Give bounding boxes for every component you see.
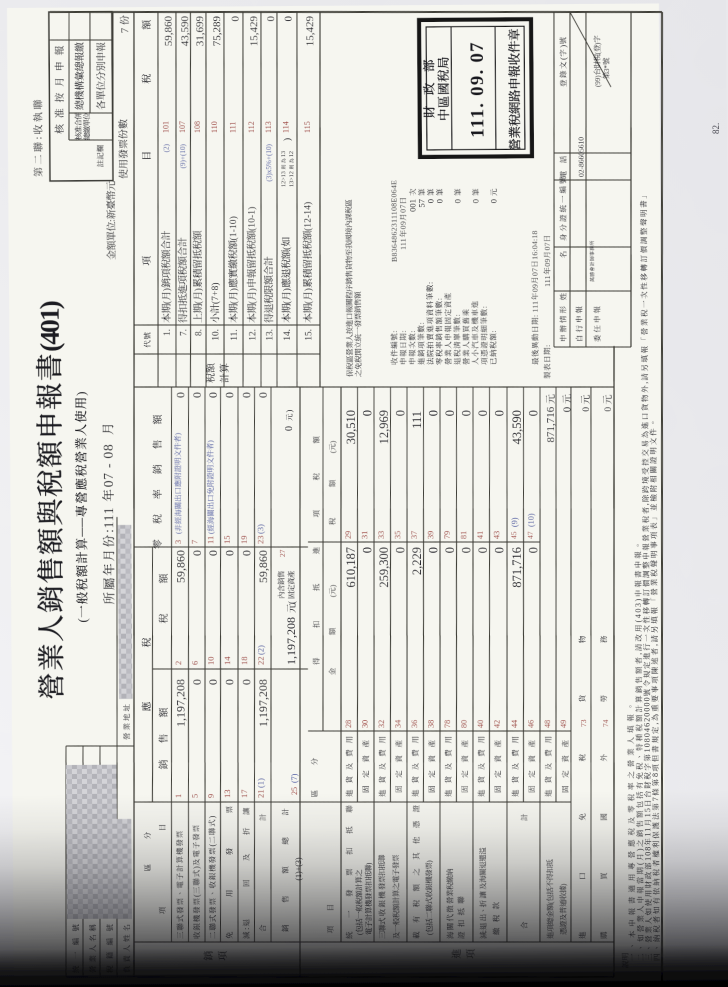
svg-text:46: 46 [526, 720, 535, 728]
svg-text:47: 47 [526, 531, 535, 539]
svg-text:(401): (401) [35, 299, 66, 352]
svg-text:113: 113 [264, 121, 273, 133]
svg-text:0: 0 [471, 199, 481, 203]
svg-text:13.: 13. [266, 329, 276, 341]
svg-text:0: 0 [604, 407, 614, 412]
svg-text:37: 37 [410, 531, 419, 539]
svg-text:(: ( [303, 301, 314, 304]
svg-text:(: ( [287, 601, 297, 604]
svg-text:0: 0 [582, 407, 592, 412]
svg-text:32: 32 [377, 720, 386, 728]
svg-text:31,699: 31,699 [194, 15, 206, 46]
svg-text:09: 09 [399, 221, 408, 229]
svg-text:0: 0 [206, 392, 220, 398]
svg-text:): ) [282, 138, 293, 141]
svg-text:15: 15 [222, 535, 232, 544]
svg-text:7.: 7. [180, 329, 190, 336]
svg-text:871,716: 871,716 [510, 547, 524, 588]
svg-text:13: 13 [280, 151, 287, 157]
svg-text:0: 0 [562, 406, 574, 412]
svg-text:111: 111 [410, 411, 424, 429]
svg-text::: : [480, 306, 489, 309]
svg-text::: : [543, 345, 552, 347]
svg-text:): ) [229, 288, 240, 291]
svg-text:,: , [651, 721, 660, 724]
svg-text:12>13: 12>13 [280, 171, 287, 187]
svg-text:(1-10): (1-10) [228, 216, 239, 241]
svg-text:09: 09 [530, 284, 539, 292]
svg-text:44: 44 [510, 720, 519, 728]
svg-text:0: 0 [493, 547, 507, 553]
svg-text:0: 0 [459, 547, 473, 553]
svg-text:59,860: 59,860 [174, 550, 188, 583]
svg-text:(2): (2) [255, 645, 265, 655]
svg-text:09: 09 [543, 258, 552, 266]
svg-text:8: 8 [651, 772, 660, 777]
svg-text:(: ( [193, 301, 204, 304]
svg-text:48: 48 [543, 720, 552, 728]
svg-text:0: 0 [206, 679, 220, 685]
svg-text:0: 0 [393, 547, 407, 553]
svg-text:): ) [282, 288, 293, 291]
svg-text:0: 0 [493, 410, 507, 416]
svg-text:(403): (403) [634, 597, 643, 622]
svg-text:112: 112 [247, 121, 256, 133]
svg-text:33: 33 [377, 531, 386, 539]
svg-text:0: 0 [394, 410, 408, 416]
svg-text:35: 35 [393, 531, 402, 539]
svg-text:0: 0 [223, 550, 237, 556]
svg-text:: 111: : 111 [531, 301, 540, 317]
svg-text:07: 07 [543, 242, 552, 250]
svg-text:12.: 12. [249, 329, 259, 341]
svg-text:0: 0 [206, 550, 220, 556]
svg-text:0: 0 [256, 392, 270, 398]
svg-text:(: ( [229, 301, 240, 304]
svg-text:0: 0 [476, 547, 490, 553]
svg-text:16:04:18: 16:04:18 [530, 230, 539, 259]
svg-text:): ) [247, 288, 258, 291]
svg-text:111: 111 [543, 275, 552, 287]
svg-text:0: 0 [527, 410, 541, 416]
svg-text:0: 0 [222, 679, 236, 685]
svg-text:101: 101 [161, 121, 170, 133]
svg-text:,: , [641, 502, 650, 505]
svg-text:(2): (2) [162, 143, 170, 152]
svg-text::: : [453, 314, 462, 317]
svg-text:15.: 15. [305, 329, 315, 341]
svg-text:1.: 1. [163, 329, 173, 336]
svg-text::: : [489, 330, 498, 333]
svg-text:3*: 3* [603, 64, 611, 72]
svg-text:07: 07 [399, 204, 408, 212]
svg-text:10: 10 [205, 656, 215, 665]
svg-text:31: 31 [360, 531, 369, 539]
svg-text:): ) [73, 391, 88, 396]
svg-text:0: 0 [427, 410, 441, 416]
svg-text:1,197,208: 1,197,208 [284, 617, 298, 665]
svg-text:81: 81 [459, 531, 468, 539]
svg-text:39: 39 [426, 531, 435, 539]
svg-text:111: 111 [229, 122, 238, 133]
svg-text:43,590: 43,590 [510, 410, 524, 444]
svg-text:11: 11 [205, 536, 215, 544]
svg-text:1,197,208: 1,197,208 [256, 679, 270, 727]
svg-text:27: 27 [278, 549, 287, 557]
svg-text:82.: 82. [711, 123, 721, 134]
svg-text:111. 09. 07: 111. 09. 07 [467, 41, 489, 138]
svg-text:74: 74 [601, 719, 610, 727]
svg-text:): ) [303, 288, 314, 291]
svg-text:30,510: 30,510 [344, 410, 358, 444]
svg-text:): ) [193, 288, 204, 291]
svg-text:(9): (9) [510, 517, 519, 527]
svg-text:73: 73 [579, 719, 588, 727]
svg-text:75,289: 75,289 [211, 15, 223, 46]
svg-text:15,429: 15,429 [248, 15, 260, 46]
svg-text:28: 28 [344, 720, 353, 728]
svg-text:0: 0 [460, 410, 474, 416]
svg-text:78: 78 [443, 720, 452, 728]
svg-text:0: 0 [426, 547, 440, 553]
svg-text:0: 0 [229, 15, 241, 21]
svg-text:(10): (10) [526, 513, 535, 527]
svg-text:259,300: 259,300 [377, 547, 391, 588]
svg-text:7: 7 [119, 27, 131, 33]
svg-text:43: 43 [492, 531, 501, 539]
svg-text:29: 29 [344, 531, 353, 539]
svg-text:18: 18 [239, 656, 249, 665]
svg-text:871,716: 871,716 [545, 406, 557, 442]
svg-text:(7): (7) [290, 773, 299, 783]
svg-text:7: 7 [189, 540, 199, 544]
svg-text:(12-14): (12-14) [303, 202, 314, 231]
svg-text:0: 0 [361, 410, 375, 416]
svg-text:14: 14 [222, 656, 232, 665]
svg-text:0: 0 [265, 15, 277, 21]
svg-text:0: 0 [527, 547, 541, 553]
svg-text:36: 36 [410, 720, 419, 728]
svg-text:(3)x5%+(10): (3)x5%+(10) [265, 143, 273, 181]
svg-text:(1): (1) [255, 778, 265, 788]
svg-text:40: 40 [476, 720, 485, 728]
svg-text:0: 0 [223, 392, 237, 398]
svg-text:(: ( [281, 247, 292, 250]
svg-text:8.: 8. [195, 329, 205, 336]
svg-text:07: 07 [530, 268, 539, 276]
svg-text:0: 0 [434, 199, 444, 203]
svg-text:0: 0 [443, 410, 457, 416]
svg-text:): ) [162, 288, 173, 291]
svg-text:(9)+(10): (9)+(10) [179, 143, 187, 168]
svg-text:2: 2 [173, 661, 183, 665]
svg-text:107: 107 [178, 121, 187, 133]
svg-text:1,197,208: 1,197,208 [174, 679, 188, 727]
svg-text:──: ── [74, 517, 89, 538]
svg-text:0: 0 [453, 199, 463, 203]
svg-text:11.: 11. [230, 329, 240, 340]
svg-text:0: 0 [476, 410, 490, 416]
svg-text:115: 115 [303, 121, 312, 133]
svg-text:02-86605610: 02-86605610 [577, 137, 586, 177]
svg-text::: : [108, 219, 118, 222]
svg-text:0: 0 [239, 550, 253, 556]
svg-text:,: , [634, 651, 643, 655]
svg-text:(: ( [282, 301, 293, 304]
svg-text:110: 110 [210, 121, 219, 133]
svg-text:(7+8): (7+8) [210, 282, 221, 304]
svg-text:,: , [650, 643, 659, 646]
svg-text:45: 45 [509, 531, 518, 539]
svg-text:0: 0 [239, 679, 253, 685]
svg-text:B8364862311108E064E: B8364862311108E064E [389, 180, 399, 262]
svg-text:0: 0 [240, 392, 254, 398]
svg-text:(: ( [75, 618, 90, 623]
svg-text:12: 12 [288, 151, 295, 157]
svg-text:22: 22 [255, 656, 265, 665]
svg-text::: : [435, 298, 444, 301]
svg-text:0: 0 [174, 392, 188, 398]
svg-text:14.: 14. [283, 329, 293, 341]
svg-text:114: 114 [282, 121, 291, 133]
svg-text:15,429: 15,429 [304, 15, 316, 46]
svg-text:19: 19 [239, 535, 249, 544]
svg-text:(: ( [162, 301, 173, 304]
svg-text:108: 108 [193, 121, 202, 133]
svg-text:0: 0 [360, 547, 374, 553]
svg-text:0: 0 [190, 679, 204, 685]
svg-text:3: 3 [173, 540, 183, 544]
svg-text:(10-1): (10-1) [247, 206, 258, 231]
svg-text::: : [408, 330, 417, 333]
svg-text:): ) [558, 44, 568, 47]
svg-text:610,187: 610,187 [344, 547, 358, 588]
svg-text::: : [390, 330, 399, 333]
svg-text:42: 42 [492, 720, 501, 728]
svg-text:38: 38 [426, 720, 435, 728]
svg-text:0: 0 [284, 426, 295, 431]
svg-text::: : [417, 322, 426, 325]
svg-text:30: 30 [360, 720, 369, 728]
svg-text:(3): (3) [255, 524, 265, 534]
svg-text:59,860: 59,860 [162, 15, 174, 46]
svg-text::: : [399, 330, 408, 333]
svg-text:10.: 10. [212, 329, 222, 341]
svg-text:(: ( [558, 57, 568, 60]
svg-text:6: 6 [189, 661, 199, 665]
svg-text:0: 0 [443, 547, 457, 553]
svg-text::111: :111 [101, 507, 116, 533]
svg-text:0: 0 [282, 15, 294, 21]
svg-text:12,969: 12,969 [377, 410, 391, 444]
svg-text::: : [34, 135, 45, 140]
svg-text:111: 111 [399, 238, 408, 250]
svg-text:): ) [284, 409, 294, 412]
svg-text:59,860: 59,860 [256, 550, 270, 583]
svg-text:,: , [640, 381, 649, 384]
svg-text:80: 80 [459, 720, 468, 728]
svg-text:79: 79 [443, 531, 452, 539]
svg-text::: : [425, 282, 434, 285]
svg-text:0: 0 [190, 392, 204, 398]
svg-text:23: 23 [255, 535, 265, 544]
svg-text:41: 41 [476, 531, 485, 539]
svg-text:(: ( [247, 301, 258, 304]
svg-text:34: 34 [393, 720, 402, 728]
svg-text:0: 0 [489, 199, 499, 203]
svg-text:(99): (99) [594, 75, 602, 87]
svg-text:13>12: 13>12 [288, 171, 295, 187]
svg-text:49: 49 [559, 720, 568, 728]
svg-text:43,590: 43,590 [179, 15, 191, 46]
svg-text:0: 0 [190, 550, 204, 556]
svg-text:2,229: 2,229 [410, 547, 424, 575]
svg-text:07 - 08: 07 - 08 [101, 443, 116, 487]
